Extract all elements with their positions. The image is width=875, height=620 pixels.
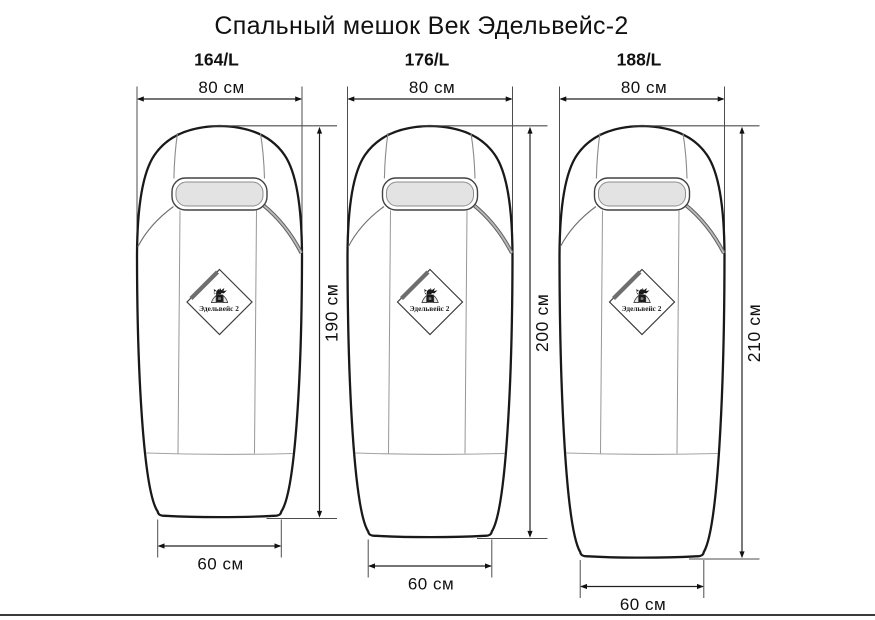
svg-text:188/L: 188/L (617, 50, 662, 70)
svg-text:80 см: 80 см (621, 78, 667, 97)
svg-text:Эдельвейс 2: Эдельвейс 2 (410, 304, 450, 313)
svg-text:80 см: 80 см (198, 78, 244, 97)
svg-text:164/L: 164/L (194, 50, 239, 70)
svg-text:210 см: 210 см (744, 304, 764, 362)
svg-text:60 см: 60 см (620, 595, 666, 614)
svg-text:80 см: 80 см (409, 78, 455, 97)
svg-text:176/L: 176/L (405, 50, 450, 70)
svg-text:60 см: 60 см (197, 555, 243, 574)
svg-text:190 см: 190 см (322, 284, 342, 342)
svg-text:60 см: 60 см (408, 575, 454, 594)
svg-text:Эдельвейс 2: Эдельвейс 2 (622, 304, 662, 313)
svg-text:Эдельвейс 2: Эдельвейс 2 (199, 304, 239, 313)
svg-text:200 см: 200 см (532, 294, 552, 352)
svg-text:Спальный мешок Век Эдельвейс-2: Спальный мешок Век Эдельвейс-2 (214, 12, 628, 40)
